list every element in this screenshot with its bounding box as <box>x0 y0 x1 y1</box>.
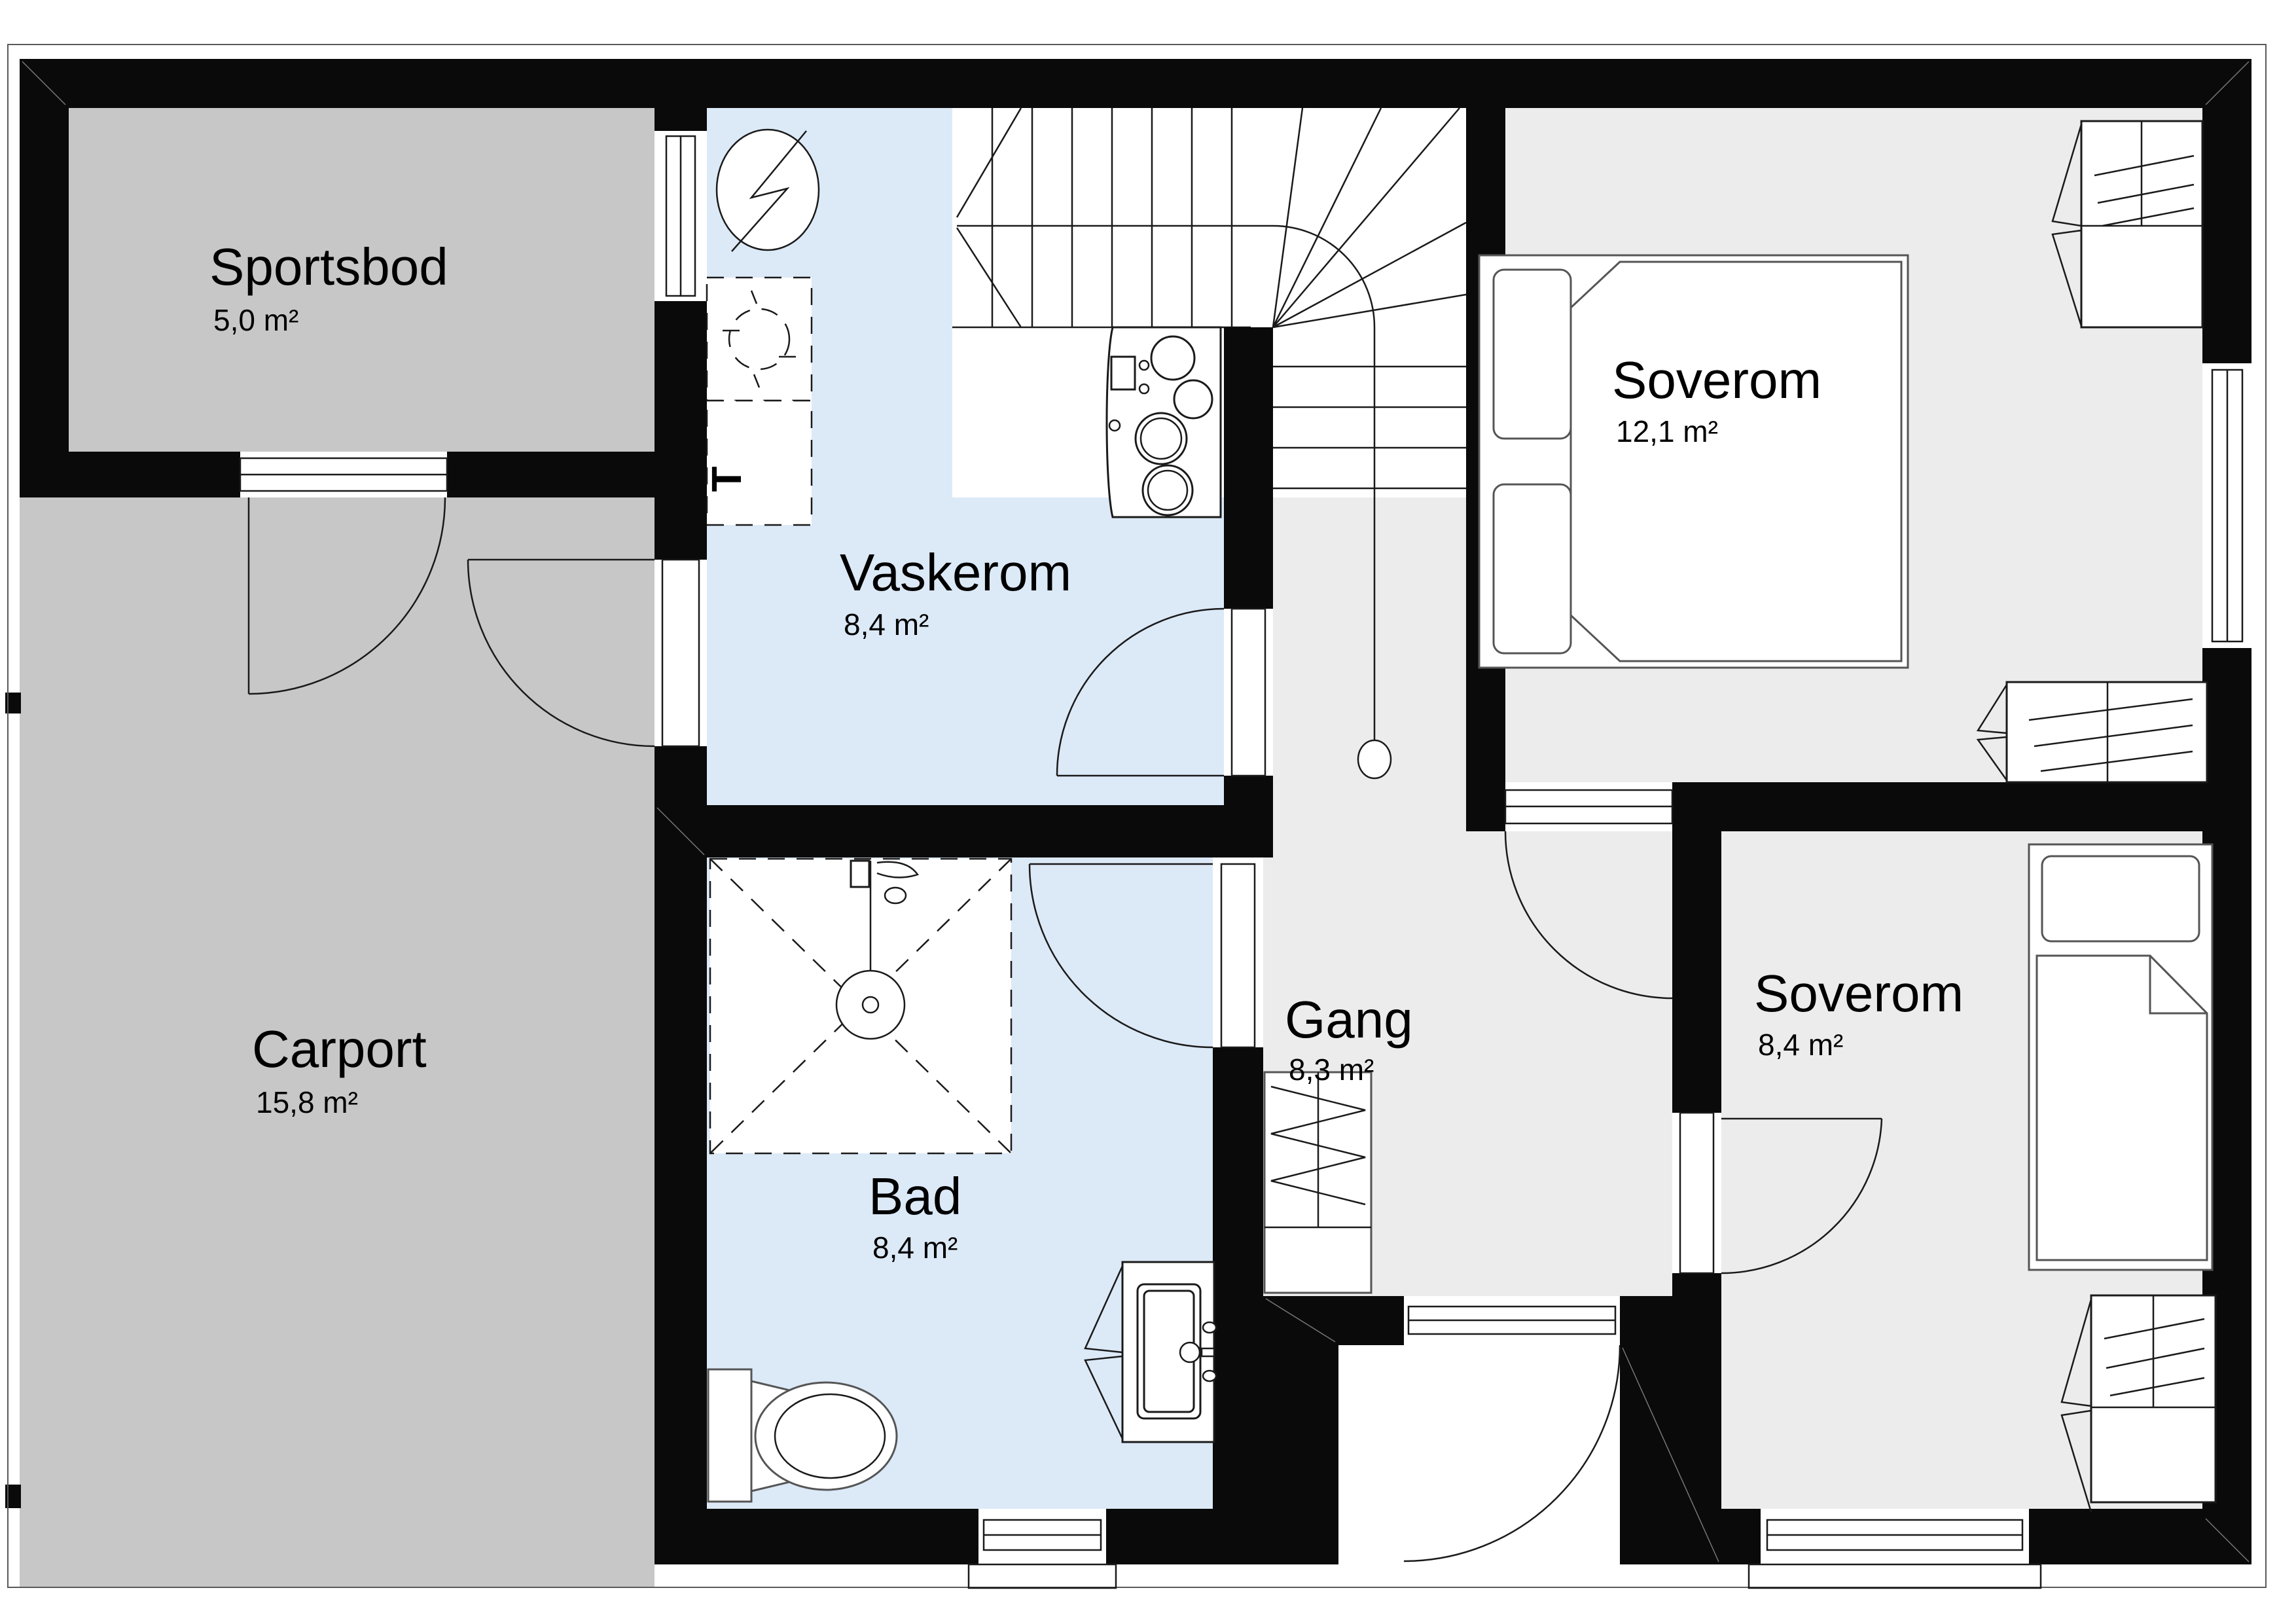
stair-start-circle <box>1358 740 1391 778</box>
dryer-outline: T <box>703 401 812 525</box>
room-area: 8,4 m² <box>844 607 929 641</box>
shower <box>710 859 1011 1153</box>
floor-entrance-niche <box>1338 1345 1620 1587</box>
window-soverom-stor <box>2202 363 2251 648</box>
room-name: Soverom <box>1612 351 1821 409</box>
room-name: Bad <box>869 1167 961 1225</box>
wall-bottom-bad-a <box>655 1509 978 1564</box>
room-name: Gang <box>1285 990 1413 1049</box>
label-bad: Bad 8,4 m² <box>869 1167 961 1265</box>
window-vaskerom <box>655 131 707 301</box>
room-name: Vaskerom <box>840 543 1071 602</box>
gang-wardrobe <box>1265 1072 1371 1293</box>
wall-west-c <box>655 746 707 1564</box>
dryer-label: T <box>703 466 750 492</box>
wall-vaskerom-east-a <box>1224 327 1273 609</box>
wall-west-b <box>655 301 707 560</box>
wall-gang-top-a <box>1466 782 1505 831</box>
room-area: 12,1 m² <box>1616 414 1718 448</box>
electrical-panel-icon <box>717 130 819 251</box>
room-area: 8,3 m² <box>1289 1053 1374 1087</box>
wall-west-a <box>655 108 707 131</box>
washing-machine-outline <box>707 278 812 401</box>
wall-niche-left <box>1263 1345 1338 1564</box>
room-area: 8,4 m² <box>1758 1028 1843 1062</box>
single-bed <box>2029 844 2212 1270</box>
wall-bad-east <box>1213 1047 1263 1564</box>
wall-gang-top-b <box>1672 782 2251 831</box>
window-bad <box>969 1509 1116 1588</box>
room-name: Soverom <box>1754 964 1964 1022</box>
wall-gang-bottom-b <box>1620 1296 1721 1345</box>
wall-vaskerom-bad-divider <box>655 805 1244 857</box>
ventilation-unit <box>1107 327 1221 517</box>
window-soverom-liten <box>1749 1509 2041 1588</box>
room-area: 5,0 m² <box>213 303 298 337</box>
wardrobe-bottom <box>1978 682 2207 782</box>
wall-sportsbod-bottom-a <box>20 452 240 497</box>
room-name: Sportsbod <box>209 238 448 296</box>
floor-plan: T <box>0 0 2296 1624</box>
wall-top <box>20 59 2251 108</box>
wall-bottom-soverom-b <box>2029 1509 2251 1564</box>
wall-gang-bottom-a <box>1263 1296 1404 1345</box>
wall-gang-east-a <box>1672 831 1721 1113</box>
room-name: Carport <box>252 1020 427 1078</box>
room-area: 15,8 m² <box>256 1085 358 1119</box>
double-bed <box>1479 255 1908 668</box>
room-area: 8,4 m² <box>872 1231 958 1265</box>
wall-bottom-soverom-a <box>1721 1509 1761 1564</box>
wall-sportsbod-left <box>20 59 69 497</box>
wall-gang-east-b <box>1672 1273 1721 1296</box>
